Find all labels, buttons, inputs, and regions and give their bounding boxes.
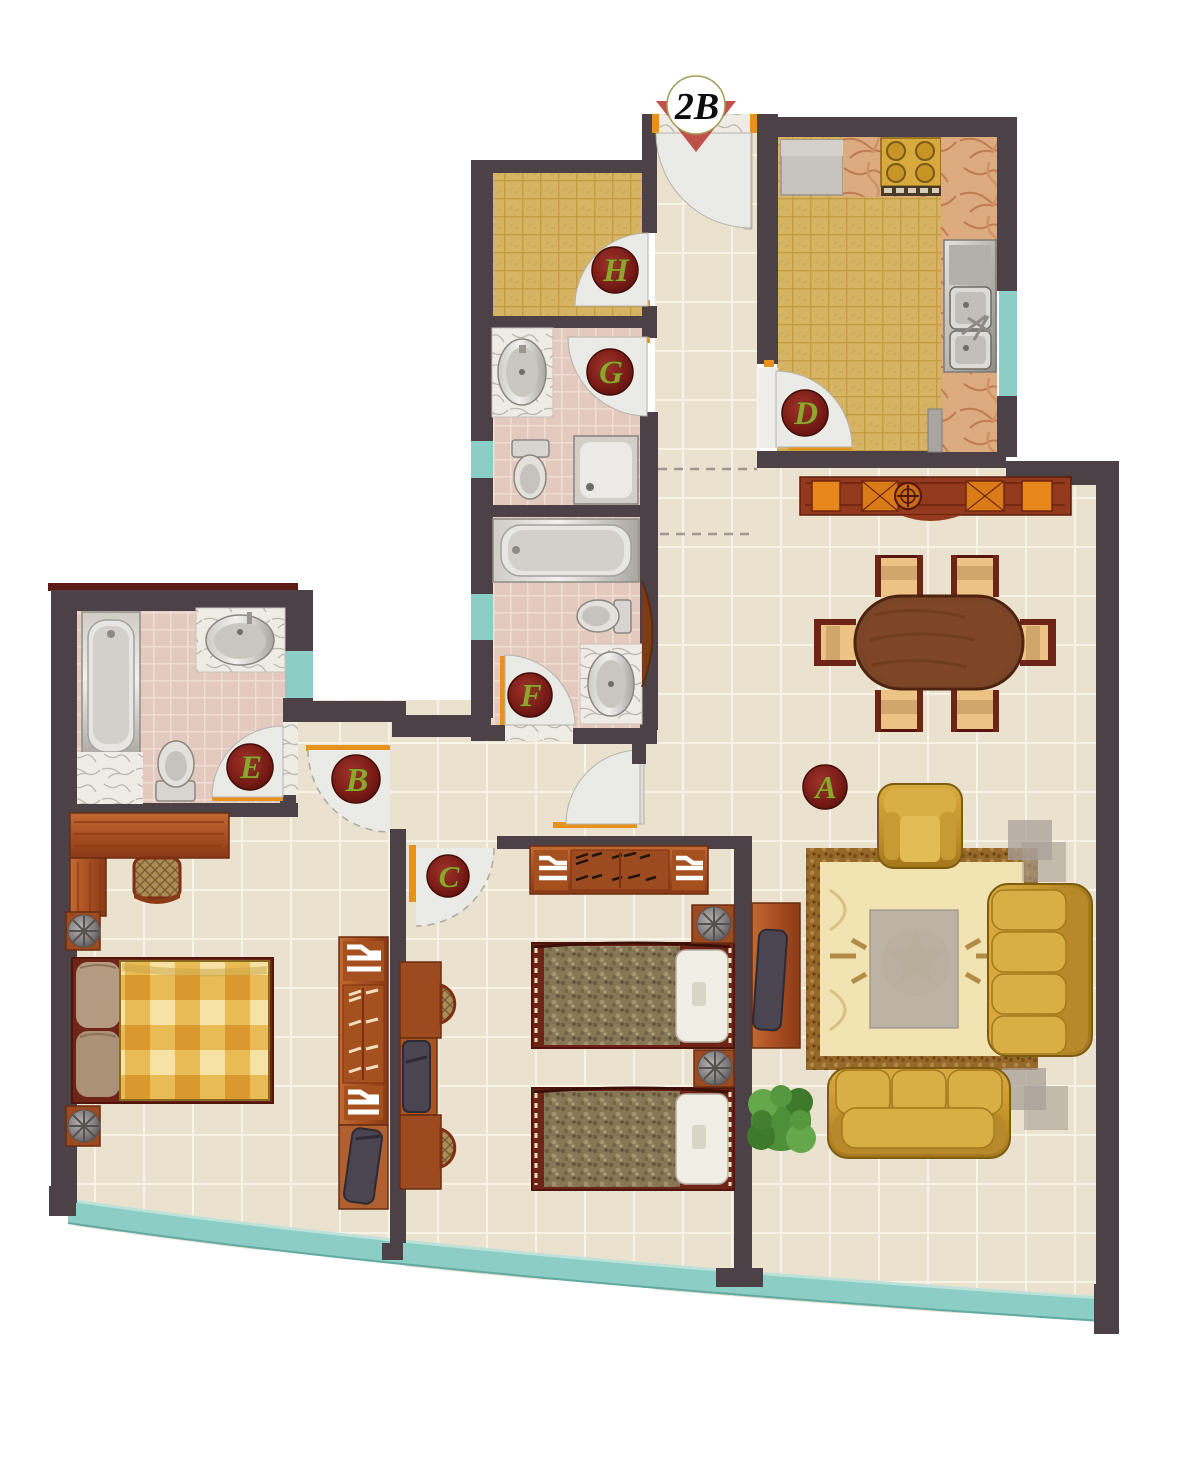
svg-text:A: A bbox=[813, 769, 836, 805]
svg-text:F: F bbox=[519, 677, 541, 713]
svg-text:G: G bbox=[599, 355, 623, 391]
svg-text:D: D bbox=[793, 396, 818, 432]
svg-text:C: C bbox=[439, 859, 460, 894]
svg-text:2B: 2B bbox=[674, 86, 719, 128]
svg-text:H: H bbox=[602, 253, 630, 289]
svg-text:E: E bbox=[239, 750, 262, 786]
svg-text:B: B bbox=[345, 762, 369, 799]
